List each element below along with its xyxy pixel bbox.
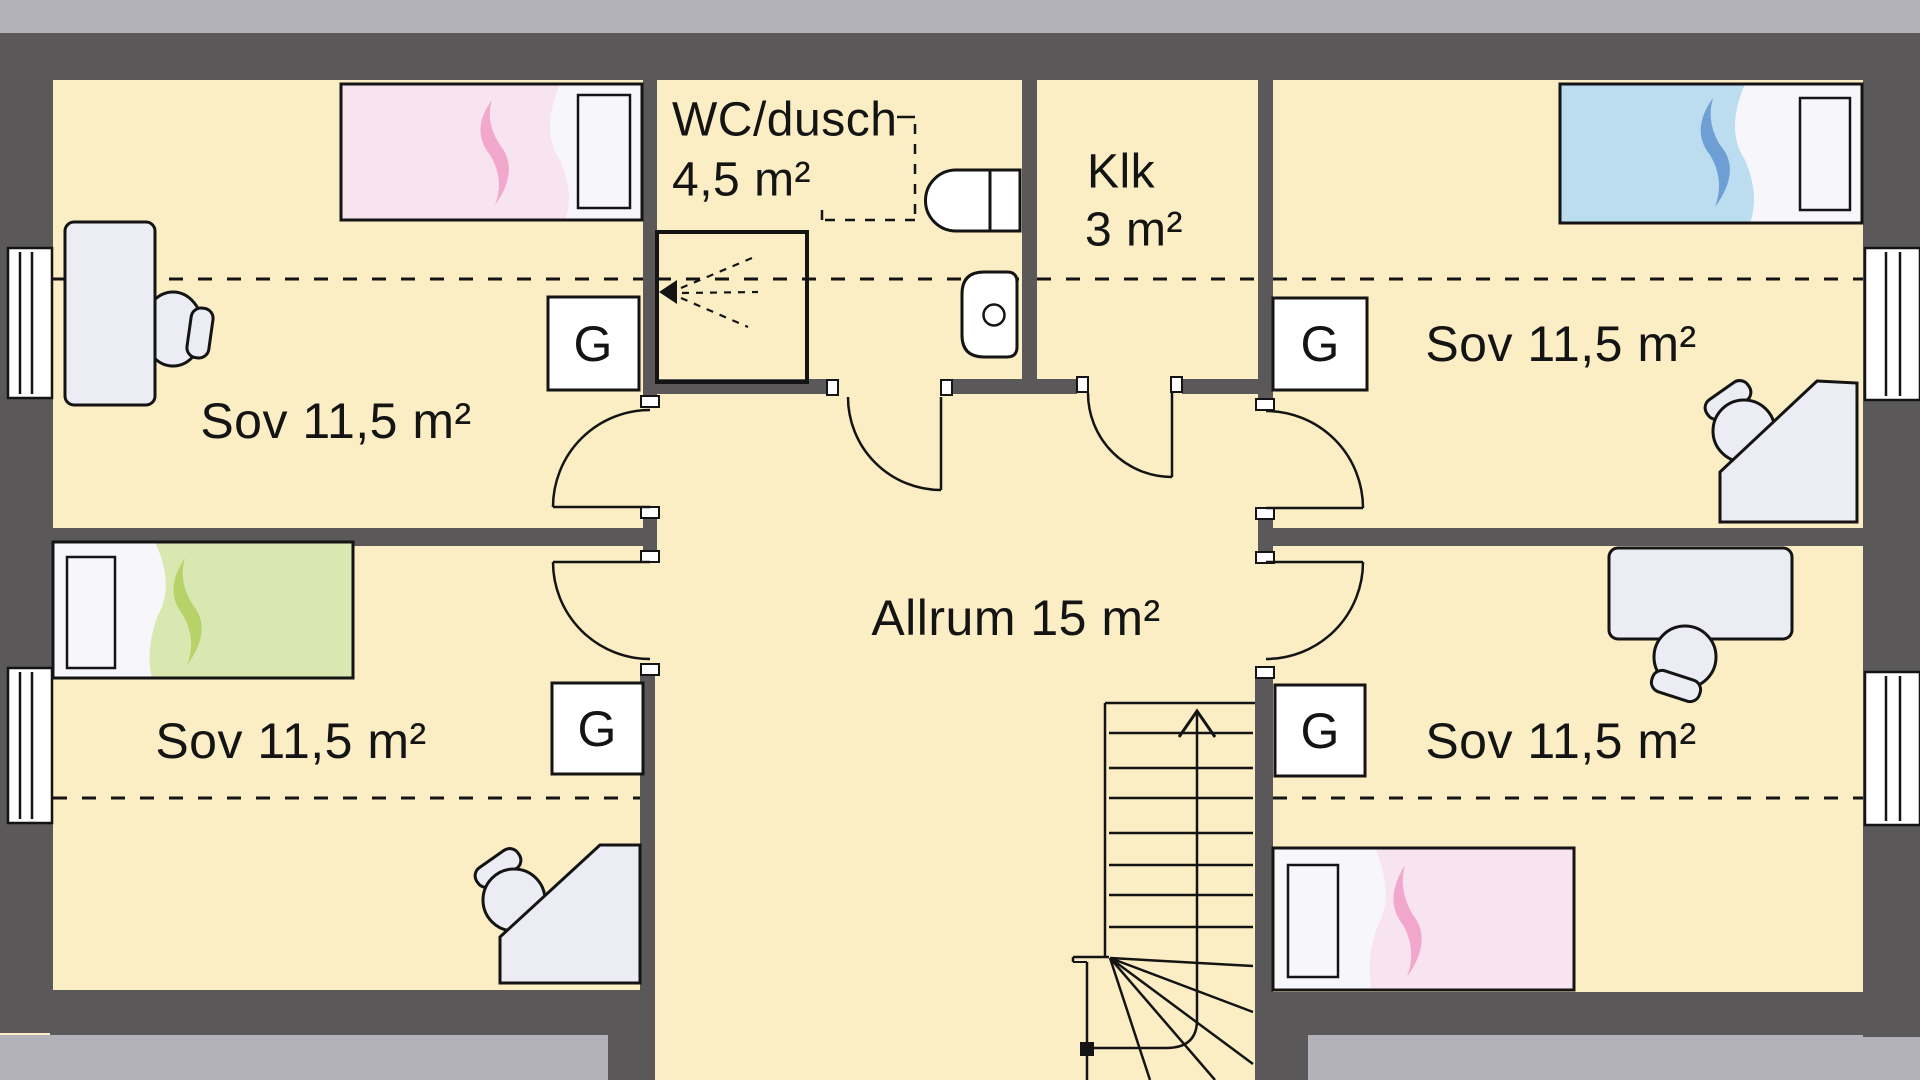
svg-text:G: G <box>1301 316 1340 372</box>
stair-newel-post <box>1080 1042 1094 1056</box>
bed-bedroom-nw <box>341 84 642 220</box>
desk-bedroom-se <box>1609 548 1792 704</box>
wardrobe-bedroom-ne: G <box>1273 298 1367 390</box>
wardrobe-bedroom-se: G <box>1275 685 1365 776</box>
window-east-north <box>1865 248 1920 400</box>
pillow <box>1800 98 1850 210</box>
door-bedroom-nw <box>553 410 650 507</box>
door-bathroom <box>848 397 941 490</box>
pillow <box>1288 865 1338 977</box>
sink <box>962 272 1017 357</box>
shower <box>657 232 807 382</box>
svg-text:G: G <box>1301 703 1340 759</box>
room-label-bedroom-ne: Sov 11,5 m² <box>1425 315 1696 373</box>
wardrobe-bedroom-nw: G <box>548 297 639 390</box>
door-bedroom-se <box>1266 562 1363 659</box>
bed-bedroom-sw <box>53 542 353 678</box>
room-label-bedroom-nw: Sov 11,5 m² <box>200 392 471 450</box>
desk-bedroom-sw <box>471 845 640 983</box>
room-area-bathroom: 4,5 m² <box>672 153 811 208</box>
staircase <box>1073 703 1255 1080</box>
window-west-south <box>8 668 52 823</box>
room-label-bedroom-se: Sov 11,5 m² <box>1425 712 1696 770</box>
room-label-common: Allrum 15 m² <box>871 589 1160 647</box>
toilet <box>925 170 1020 231</box>
shower-head-icon <box>659 258 758 327</box>
desk-bedroom-nw <box>65 222 214 405</box>
room-label-closet: Klk <box>1087 145 1155 200</box>
room-label-bedroom-sw: Sov 11,5 m² <box>155 712 426 770</box>
wardrobe-bedroom-sw: G <box>552 683 643 774</box>
svg-text:G: G <box>578 701 617 757</box>
door-bedroom-sw <box>553 562 650 659</box>
bed-bedroom-ne <box>1560 84 1862 223</box>
window-east-south <box>1865 672 1920 825</box>
door-bedroom-ne <box>1266 411 1363 508</box>
window-west-north <box>8 248 52 398</box>
door-closet <box>1088 393 1172 477</box>
floor-plan: G G G G Sov 11,5 m² Sov 11,5 m² Sov 11,5… <box>0 0 1920 1080</box>
plan-graphics: G G G G <box>0 0 1920 1080</box>
pillow <box>578 95 630 208</box>
bed-bedroom-se <box>1273 848 1574 990</box>
room-area-closet: 3 m² <box>1085 203 1183 258</box>
room-label-bathroom: WC/dusch <box>672 93 897 148</box>
desk-bedroom-ne <box>1701 377 1857 522</box>
pillow <box>67 557 115 668</box>
svg-text:G: G <box>574 316 613 372</box>
